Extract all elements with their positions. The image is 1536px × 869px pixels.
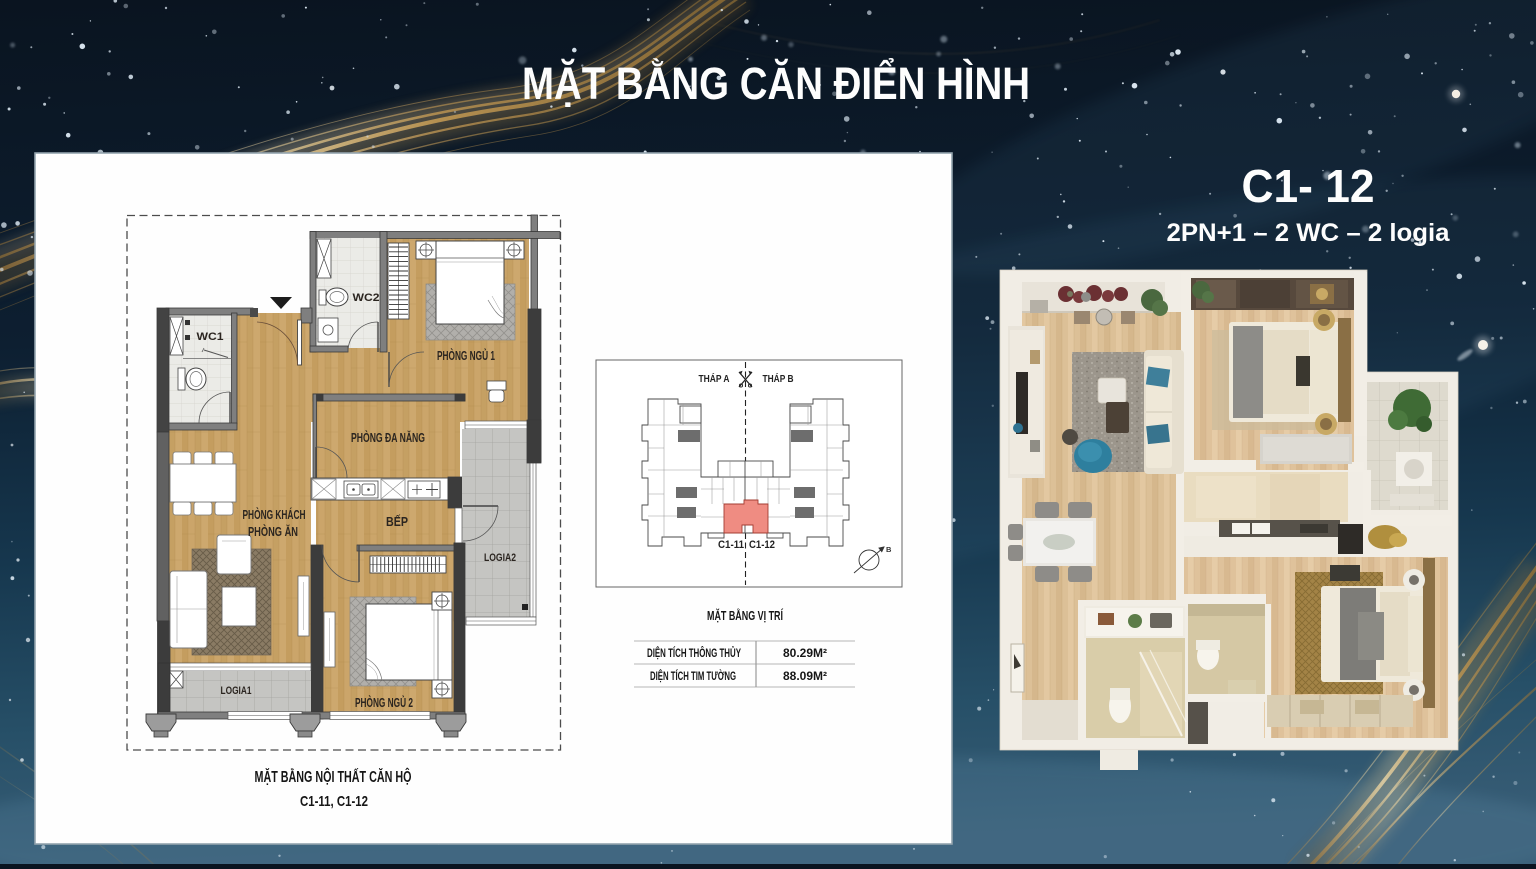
svg-text:LOGIA2: LOGIA2 bbox=[484, 552, 516, 564]
svg-text:MẶT BẰNG VỊ TRÍ: MẶT BẰNG VỊ TRÍ bbox=[707, 608, 783, 623]
svg-text:80.29M²: 80.29M² bbox=[783, 646, 827, 660]
svg-text:88.09M²: 88.09M² bbox=[783, 669, 827, 683]
svg-text:PHÒNG ĐA NĂNG: PHÒNG ĐA NĂNG bbox=[351, 430, 425, 445]
svg-text:C1-11, C1-12: C1-11, C1-12 bbox=[300, 793, 368, 810]
svg-text:DIỆN TÍCH TIM TƯỜNG: DIỆN TÍCH TIM TƯỜNG bbox=[650, 668, 736, 683]
svg-text:WC1: WC1 bbox=[197, 331, 224, 343]
svg-text:2PN+1 – 2 WC – 2 logia: 2PN+1 – 2 WC – 2 logia bbox=[1167, 219, 1451, 247]
svg-text:PHÒNG KHÁCH: PHÒNG KHÁCH bbox=[243, 507, 306, 522]
svg-text:C1- 12: C1- 12 bbox=[1242, 160, 1375, 212]
svg-text:B: B bbox=[886, 545, 892, 554]
svg-text:C1-11: C1-11 bbox=[718, 539, 744, 551]
svg-text:BẾP: BẾP bbox=[386, 514, 408, 529]
svg-text:THÁP A: THÁP A bbox=[699, 372, 730, 385]
svg-text:PHÒNG NGỦ 2: PHÒNG NGỦ 2 bbox=[355, 695, 413, 710]
svg-text:MẶT BẰNG NỘI THẤT CĂN HỘ: MẶT BẰNG NỘI THẤT CĂN HỘ bbox=[255, 767, 412, 786]
svg-text:PHÒNG ĂN: PHÒNG ĂN bbox=[248, 524, 298, 539]
svg-text:MẶT BẰNG CĂN ĐIỂN HÌNH: MẶT BẰNG CĂN ĐIỂN HÌNH bbox=[522, 58, 1030, 109]
svg-text:WC2: WC2 bbox=[353, 292, 380, 304]
svg-text:DIỆN TÍCH THÔNG THỦY: DIỆN TÍCH THÔNG THỦY bbox=[647, 645, 741, 660]
svg-text:THÁP B: THÁP B bbox=[763, 372, 794, 385]
svg-text:C1-12: C1-12 bbox=[749, 539, 775, 551]
svg-text:LOGIA1: LOGIA1 bbox=[221, 685, 252, 697]
svg-text:PHÒNG NGỦ 1: PHÒNG NGỦ 1 bbox=[437, 348, 495, 363]
